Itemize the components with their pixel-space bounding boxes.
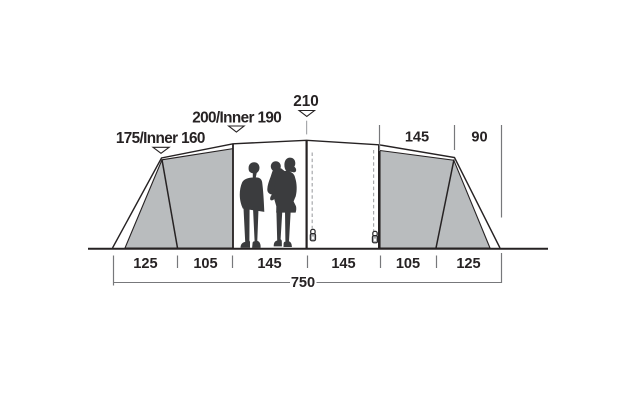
svg-text:90: 90 bbox=[471, 130, 487, 146]
svg-text:200/Inner 190: 200/Inner 190 bbox=[192, 109, 281, 126]
svg-text:175/Inner 160: 175/Inner 160 bbox=[116, 130, 205, 147]
svg-text:145: 145 bbox=[257, 256, 281, 272]
svg-text:145: 145 bbox=[405, 130, 429, 146]
svg-text:105: 105 bbox=[193, 256, 217, 272]
svg-text:750: 750 bbox=[291, 275, 315, 291]
svg-text:125: 125 bbox=[456, 256, 480, 272]
svg-text:145: 145 bbox=[331, 256, 355, 272]
svg-text:210: 210 bbox=[293, 93, 319, 110]
svg-text:125: 125 bbox=[133, 256, 157, 272]
svg-text:105: 105 bbox=[396, 256, 420, 272]
